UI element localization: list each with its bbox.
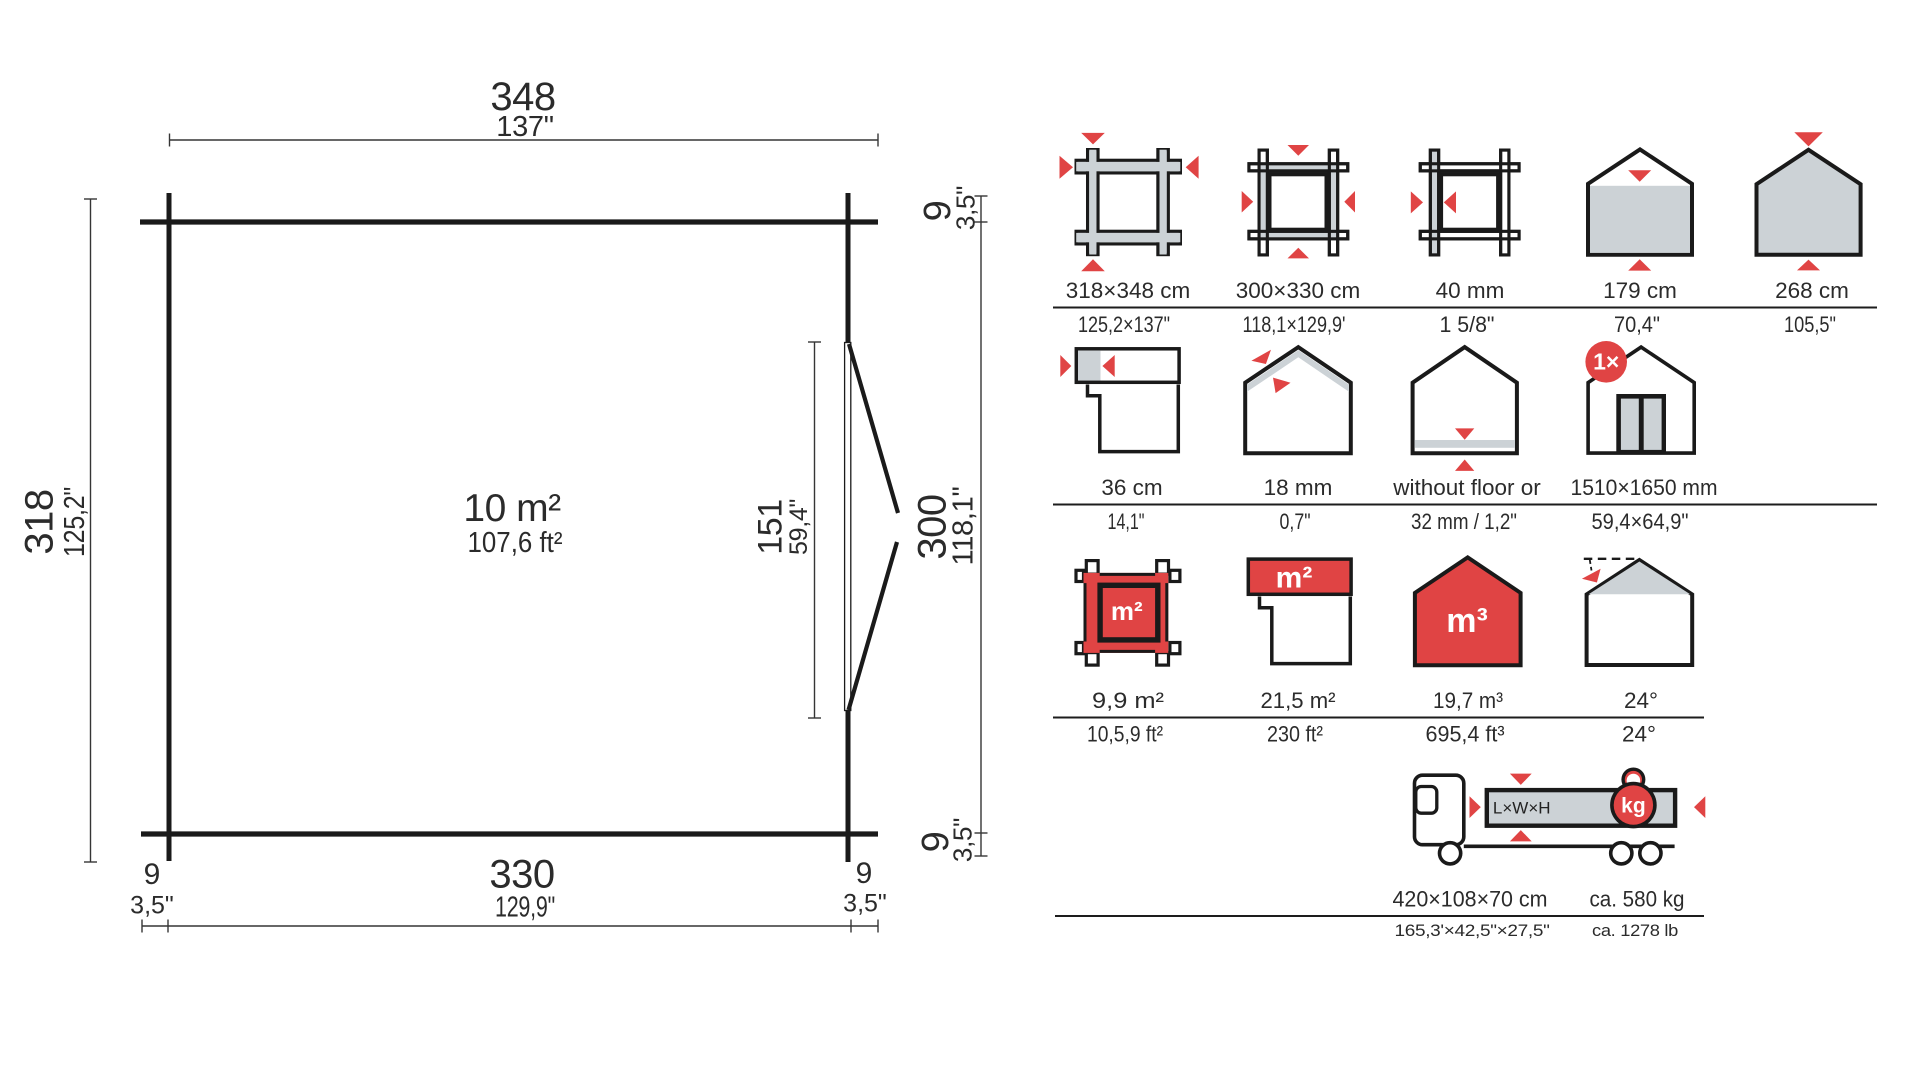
- svg-text:m²: m²: [1276, 562, 1313, 595]
- svg-text:L×W×H: L×W×H: [1493, 799, 1551, 818]
- svg-text:without floor or: without floor or: [1392, 475, 1541, 500]
- svg-text:10,5,9 ft²: 10,5,9 ft²: [1087, 722, 1163, 747]
- svg-text:268 cm: 268 cm: [1775, 278, 1849, 303]
- svg-text:1510×1650 mm: 1510×1650 mm: [1571, 475, 1718, 500]
- svg-text:kg: kg: [1621, 795, 1646, 818]
- svg-text:118,1×129,9': 118,1×129,9': [1243, 312, 1346, 337]
- svg-text:0,7": 0,7": [1280, 509, 1311, 534]
- svg-text:14,1": 14,1": [1108, 509, 1145, 534]
- svg-text:300×330 cm: 300×330 cm: [1236, 278, 1360, 303]
- svg-text:19,7 m³: 19,7 m³: [1433, 688, 1503, 713]
- svg-text:21,5 m²: 21,5 m²: [1261, 688, 1336, 713]
- svg-text:3,5": 3,5": [843, 890, 887, 918]
- svg-text:3,5": 3,5": [130, 892, 174, 920]
- svg-text:318×348 cm: 318×348 cm: [1066, 278, 1190, 303]
- svg-text:105,5": 105,5": [1784, 312, 1836, 337]
- svg-text:24°: 24°: [1622, 722, 1656, 747]
- svg-text:230 ft²: 230 ft²: [1267, 722, 1323, 747]
- svg-text:18 mm: 18 mm: [1264, 475, 1333, 500]
- svg-text:107,6 ft²: 107,6 ft²: [468, 527, 563, 559]
- svg-text:330: 330: [489, 853, 554, 897]
- svg-text:125,2×137": 125,2×137": [1078, 312, 1170, 337]
- svg-text:9,9 m²: 9,9 m²: [1092, 688, 1165, 713]
- svg-text:137": 137": [496, 111, 553, 143]
- svg-text:24°: 24°: [1624, 688, 1658, 713]
- svg-text:ca. 1278 lb: ca. 1278 lb: [1592, 921, 1678, 940]
- svg-text:m³: m³: [1446, 602, 1488, 640]
- svg-text:165,3'×42,5"×27,5": 165,3'×42,5"×27,5": [1395, 921, 1550, 940]
- svg-text:420×108×70 cm: 420×108×70 cm: [1393, 887, 1548, 912]
- svg-text:318: 318: [18, 489, 62, 554]
- svg-text:179 cm: 179 cm: [1603, 278, 1677, 303]
- svg-text:ca. 580 kg: ca. 580 kg: [1590, 887, 1685, 912]
- svg-text:59,4×64,9": 59,4×64,9": [1592, 509, 1689, 534]
- svg-text:125,2": 125,2": [59, 487, 91, 557]
- svg-text:9: 9: [856, 857, 873, 890]
- svg-text:151: 151: [752, 499, 790, 555]
- svg-text:70,4": 70,4": [1614, 312, 1660, 337]
- svg-text:9: 9: [144, 858, 161, 891]
- svg-text:59,4": 59,4": [785, 499, 813, 555]
- svg-text:32 mm / 1,2": 32 mm / 1,2": [1411, 509, 1517, 534]
- svg-text:3,5": 3,5": [948, 818, 978, 862]
- svg-text:36 cm: 36 cm: [1101, 475, 1162, 500]
- svg-text:129,9": 129,9": [495, 892, 555, 924]
- svg-text:3,5": 3,5": [951, 186, 981, 230]
- svg-text:1 5/8": 1 5/8": [1440, 312, 1495, 337]
- svg-text:1×: 1×: [1593, 349, 1619, 375]
- svg-text:695,4 ft³: 695,4 ft³: [1426, 722, 1505, 747]
- svg-text:40 mm: 40 mm: [1436, 278, 1505, 303]
- svg-text:m²: m²: [1111, 596, 1143, 626]
- svg-text:10 m²: 10 m²: [463, 487, 561, 530]
- svg-text:118,1": 118,1": [948, 487, 980, 566]
